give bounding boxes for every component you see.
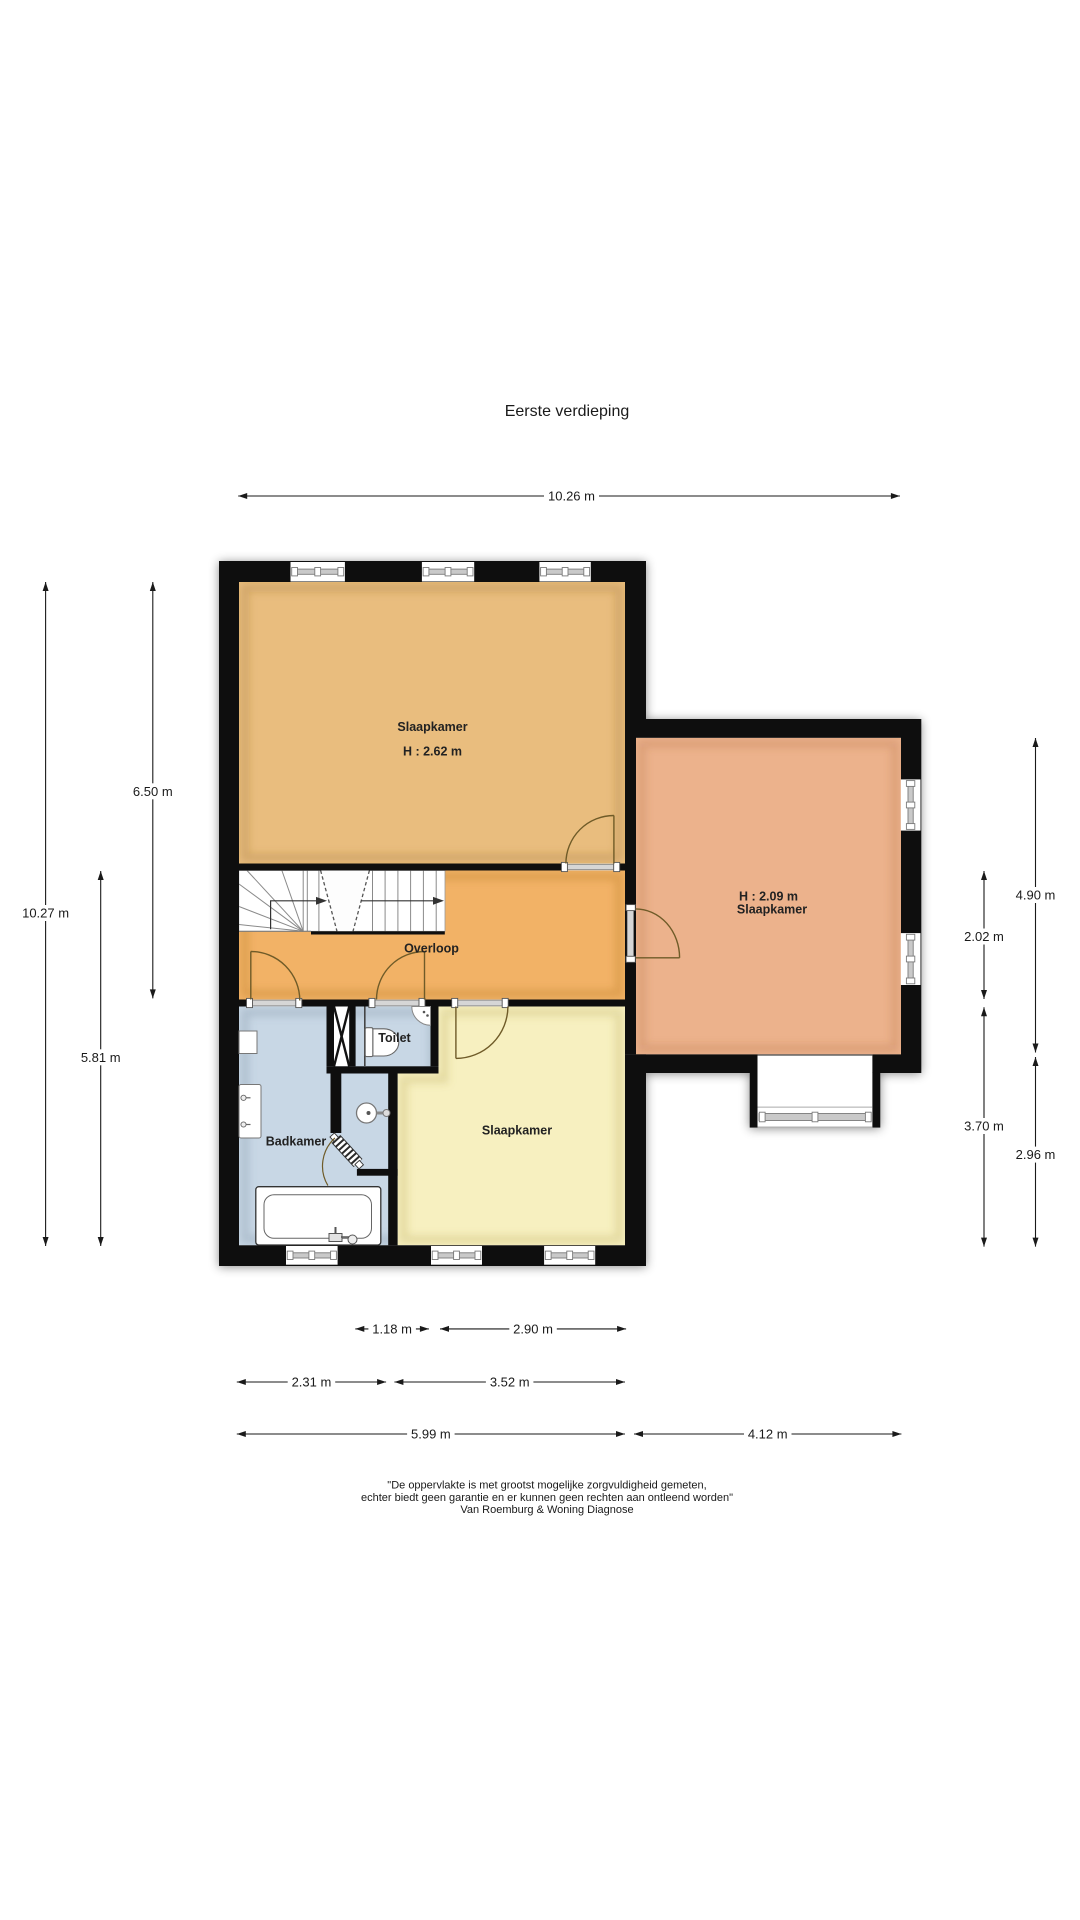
svg-text:10.26 m: 10.26 m — [548, 489, 595, 504]
svg-text:3.52 m: 3.52 m — [490, 1375, 530, 1390]
svg-text:H : 2.09 m: H : 2.09 m — [739, 890, 798, 904]
svg-text:Toilet: Toilet — [378, 1031, 411, 1045]
svg-text:1.18 m: 1.18 m — [372, 1321, 412, 1336]
svg-text:3.70 m: 3.70 m — [964, 1119, 1004, 1134]
svg-text:Slaapkamer: Slaapkamer — [482, 1124, 552, 1138]
svg-text:"De oppervlakte is met grootst: "De oppervlakte is met grootst mogelijke… — [387, 1479, 706, 1491]
svg-text:Slaapkamer: Slaapkamer — [397, 720, 467, 734]
svg-text:6.50 m: 6.50 m — [133, 784, 173, 799]
svg-text:Slaapkamer: Slaapkamer — [737, 903, 807, 917]
svg-text:Badkamer: Badkamer — [266, 1135, 327, 1149]
svg-text:2.31 m: 2.31 m — [292, 1375, 332, 1390]
svg-text:echter biedt geen garantie en: echter biedt geen garantie en er kunnen … — [361, 1492, 733, 1504]
svg-text:10.27 m: 10.27 m — [22, 906, 69, 921]
svg-text:5.81 m: 5.81 m — [81, 1050, 121, 1065]
svg-text:Van Roemburg & Woning Diagnose: Van Roemburg & Woning Diagnose — [460, 1504, 633, 1516]
svg-text:5.99 m: 5.99 m — [411, 1427, 451, 1442]
svg-text:H : 2.62 m: H : 2.62 m — [403, 745, 462, 759]
svg-text:2.02 m: 2.02 m — [964, 929, 1004, 944]
svg-text:2.90 m: 2.90 m — [513, 1321, 553, 1336]
svg-text:2.96 m: 2.96 m — [1016, 1147, 1056, 1162]
svg-text:Eerste verdieping: Eerste verdieping — [505, 403, 630, 420]
svg-text:4.90 m: 4.90 m — [1016, 888, 1056, 903]
svg-text:Overloop: Overloop — [404, 942, 459, 956]
svg-text:4.12 m: 4.12 m — [748, 1427, 788, 1442]
